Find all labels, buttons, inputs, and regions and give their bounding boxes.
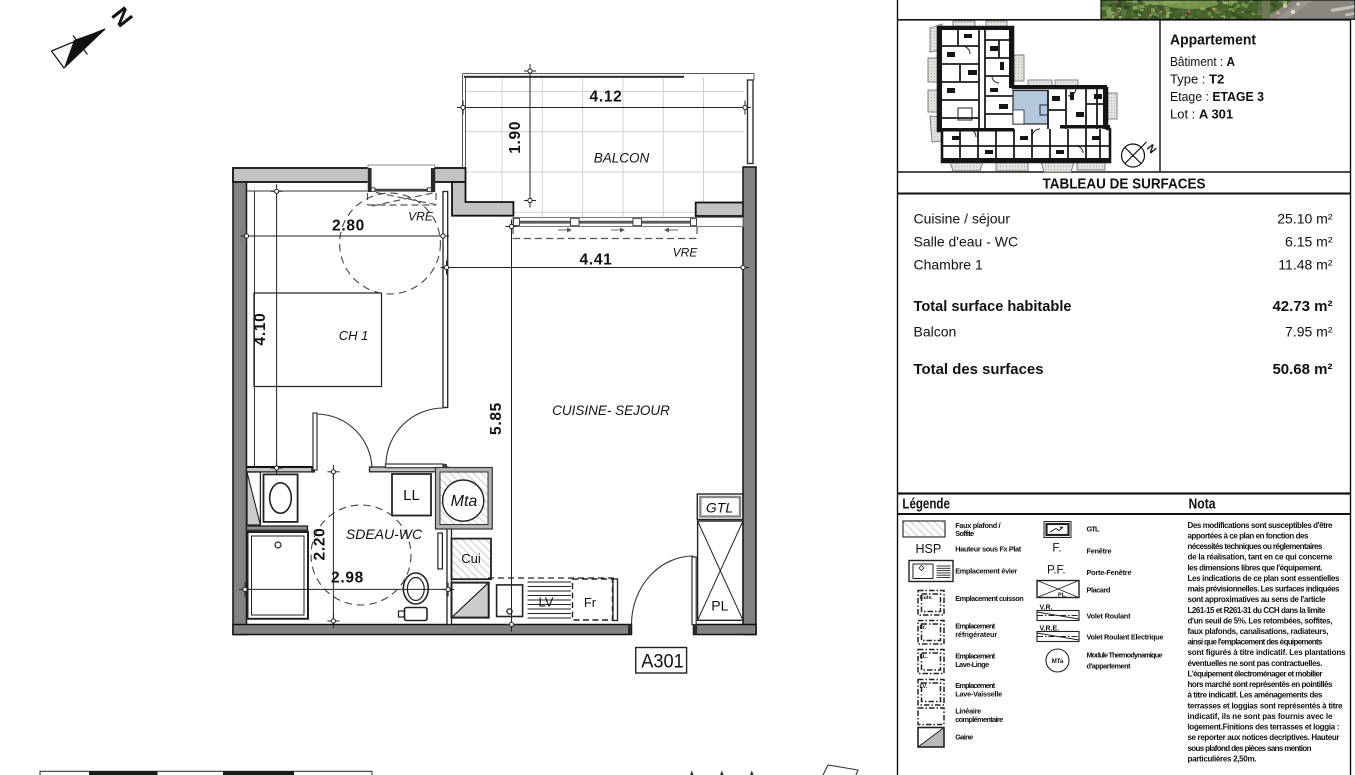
svg-text:ainsi que l'emplacement des éq: ainsi que l'emplacement des équipements bbox=[1188, 638, 1324, 647]
svg-text:d'appartement: d'appartement bbox=[1087, 661, 1132, 670]
svg-text:Nota: Nota bbox=[1189, 497, 1217, 513]
svg-text:VRE: VRE bbox=[408, 210, 434, 224]
svg-text:Fr: Fr bbox=[584, 595, 597, 610]
svg-text:P.F.: P.F. bbox=[1047, 564, 1066, 577]
svg-text:Porte-Fenêtre: Porte-Fenêtre bbox=[1087, 568, 1132, 577]
svg-text:nécessités techniques ou régle: nécessités techniques ou réglementaires bbox=[1188, 542, 1324, 551]
svg-text:complémentaire: complémentaire bbox=[955, 715, 1003, 724]
svg-text:Cui: Cui bbox=[461, 551, 481, 566]
svg-text:GTL: GTL bbox=[1087, 525, 1101, 534]
svg-text:4.12: 4.12 bbox=[590, 89, 623, 106]
svg-text:2.20: 2.20 bbox=[312, 528, 329, 561]
svg-text:BALCON: BALCON bbox=[594, 151, 650, 166]
svg-text:Soffite: Soffite bbox=[955, 529, 974, 538]
svg-text:indicatif, ils ne sont pas fou: indicatif, ils ne sont pas fournis avec … bbox=[1188, 712, 1334, 721]
svg-text:Volet Roulant: Volet Roulant bbox=[1087, 612, 1132, 621]
svg-text:A301: A301 bbox=[641, 652, 684, 673]
svg-text:Chambre 1: Chambre 1 bbox=[914, 257, 983, 273]
svg-text:Appartement: Appartement bbox=[1170, 32, 1256, 49]
svg-text:Balcon: Balcon bbox=[914, 324, 957, 340]
svg-text:50.68 m²: 50.68 m² bbox=[1272, 361, 1332, 378]
svg-text:Etage : ETAGE 3: Etage : ETAGE 3 bbox=[1170, 89, 1264, 104]
svg-text:25.10 m²: 25.10 m² bbox=[1277, 211, 1333, 227]
svg-text:PL: PL bbox=[711, 598, 728, 614]
svg-text:Total surface habitable: Total surface habitable bbox=[914, 298, 1072, 315]
svg-text:GTL: GTL bbox=[706, 500, 733, 516]
svg-text:Hauteur sous Fx Plat: Hauteur sous Fx Plat bbox=[955, 545, 1022, 554]
svg-text:7.95 m²: 7.95 m² bbox=[1285, 324, 1333, 340]
svg-text:terrasses et loggias sont repr: terrasses et loggias sont représentés à … bbox=[1188, 701, 1344, 710]
svg-text:se reporter aux notices decrip: se reporter aux notices decriptives. Hau… bbox=[1188, 733, 1340, 742]
svg-text:hors marché sont représentés e: hors marché sont représentés en pointill… bbox=[1188, 680, 1334, 689]
svg-text:5.85: 5.85 bbox=[488, 402, 505, 435]
svg-text:Bâtiment : A: Bâtiment : A bbox=[1170, 54, 1236, 69]
svg-text:sont figurés à titre indicatif: sont figurés à titre indicatif. Les plan… bbox=[1188, 648, 1347, 657]
svg-text:mais prévisionnelles. Les surf: mais prévisionnelles. Les surfaces indiq… bbox=[1188, 585, 1341, 594]
svg-text:VRE: VRE bbox=[673, 246, 699, 260]
svg-text:Cuis.: Cuis. bbox=[920, 595, 934, 601]
svg-text:LV.: LV. bbox=[920, 684, 928, 690]
svg-text:4.41: 4.41 bbox=[580, 251, 613, 268]
svg-text:6.15 m²: 6.15 m² bbox=[1285, 234, 1333, 250]
svg-text:CUISINE- SEJOUR: CUISINE- SEJOUR bbox=[552, 403, 670, 418]
svg-text:à titre indicatif. Les aménage: à titre indicatif. Les aménagements des bbox=[1188, 691, 1324, 700]
svg-text:logement.Finitions des terrass: logement.Finitions des terrasses et logg… bbox=[1188, 723, 1340, 732]
svg-text:11.48 m²: 11.48 m² bbox=[1278, 257, 1333, 273]
svg-text:éventuelles ne sont pas contra: éventuelles ne sont pas contractuelles. bbox=[1188, 659, 1323, 668]
svg-text:Gaine: Gaine bbox=[955, 733, 973, 742]
svg-text:HSP: HSP bbox=[916, 542, 942, 556]
svg-text:PL.: PL. bbox=[1058, 593, 1067, 599]
svg-text:Emplacement cuisson: Emplacement cuisson bbox=[955, 594, 1024, 603]
svg-text:particulières 2,50m.: particulières 2,50m. bbox=[1188, 754, 1257, 763]
svg-text:Salle d'eau - WC: Salle d'eau - WC bbox=[914, 234, 1019, 250]
svg-text:SDEAU-WC: SDEAU-WC bbox=[346, 526, 423, 542]
svg-text:Volet Roulant Electrique: Volet Roulant Electrique bbox=[1087, 633, 1164, 642]
svg-text:Les indications de ce plan son: Les indications de ce plan sont essentie… bbox=[1188, 574, 1341, 583]
svg-text:Mta: Mta bbox=[451, 493, 478, 510]
svg-text:1.90: 1.90 bbox=[507, 121, 524, 154]
svg-text:TABLEAU DE SURFACES: TABLEAU DE SURFACES bbox=[1043, 176, 1206, 193]
svg-text:Lave-Vaisselle: Lave-Vaisselle bbox=[955, 690, 1002, 699]
svg-text:Fenêtre: Fenêtre bbox=[1087, 547, 1112, 556]
svg-text:Total des surfaces: Total des surfaces bbox=[914, 361, 1044, 378]
svg-text:MTa: MTa bbox=[1052, 659, 1064, 665]
svg-text:LL.: LL. bbox=[920, 654, 929, 660]
svg-text:L'équipement électroménager et: L'équipement électroménager et mobilier bbox=[1188, 670, 1323, 679]
svg-text:Cuisine / séjour: Cuisine / séjour bbox=[914, 211, 1011, 227]
svg-text:faux plafonds, canalisations,: faux plafonds, canalisations, radiateurs… bbox=[1188, 627, 1329, 636]
svg-text:Module Thermodynamique: Module Thermodynamique bbox=[1087, 651, 1163, 660]
svg-text:L261-15 et R261-31 du CCH dans: L261-15 et R261-31 du CCH dans la limite bbox=[1188, 606, 1327, 615]
svg-text:Emplacement évier: Emplacement évier bbox=[955, 567, 1017, 576]
svg-text:les dimensions libres que l'éq: les dimensions libres que l'équipement. bbox=[1188, 563, 1323, 572]
svg-text:LV: LV bbox=[539, 595, 554, 610]
svg-text:Type : T2: Type : T2 bbox=[1170, 72, 1224, 87]
svg-text:F.: F. bbox=[1052, 542, 1061, 555]
svg-text:2.98: 2.98 bbox=[331, 570, 364, 587]
svg-text:Lave-Linge: Lave-Linge bbox=[955, 660, 989, 669]
svg-text:42.73 m²: 42.73 m² bbox=[1272, 298, 1332, 315]
svg-text:sous plafond des pièces sans m: sous plafond des pièces sans mention bbox=[1188, 744, 1312, 753]
svg-text:Des modifications sont suscept: Des modifications sont susceptibles d'êt… bbox=[1188, 521, 1334, 530]
svg-text:Légende: Légende bbox=[902, 497, 950, 513]
svg-text:réfrigérateur: réfrigérateur bbox=[955, 630, 997, 639]
svg-text:Fr.: Fr. bbox=[920, 625, 927, 631]
svg-text:de la réalisation, tant en ce: de la réalisation, tant en ce qui concer… bbox=[1188, 553, 1334, 562]
svg-text:Placard: Placard bbox=[1087, 586, 1111, 595]
svg-text:4.10: 4.10 bbox=[252, 313, 269, 346]
svg-text:sont approximatives au sens de: sont approximatives au sens de l'article bbox=[1188, 595, 1327, 604]
svg-text:Lot : A 301: Lot : A 301 bbox=[1170, 107, 1233, 122]
svg-text:2.80: 2.80 bbox=[332, 218, 365, 235]
svg-text:LL: LL bbox=[403, 487, 420, 504]
svg-text:apportées à ce plan en fonctio: apportées à ce plan en fonction des bbox=[1188, 531, 1310, 540]
svg-text:CH 1: CH 1 bbox=[339, 328, 369, 343]
svg-text:d'un seuil de 5%. Les retombée: d'un seuil de 5%. Les retombées, soffite… bbox=[1188, 616, 1333, 625]
